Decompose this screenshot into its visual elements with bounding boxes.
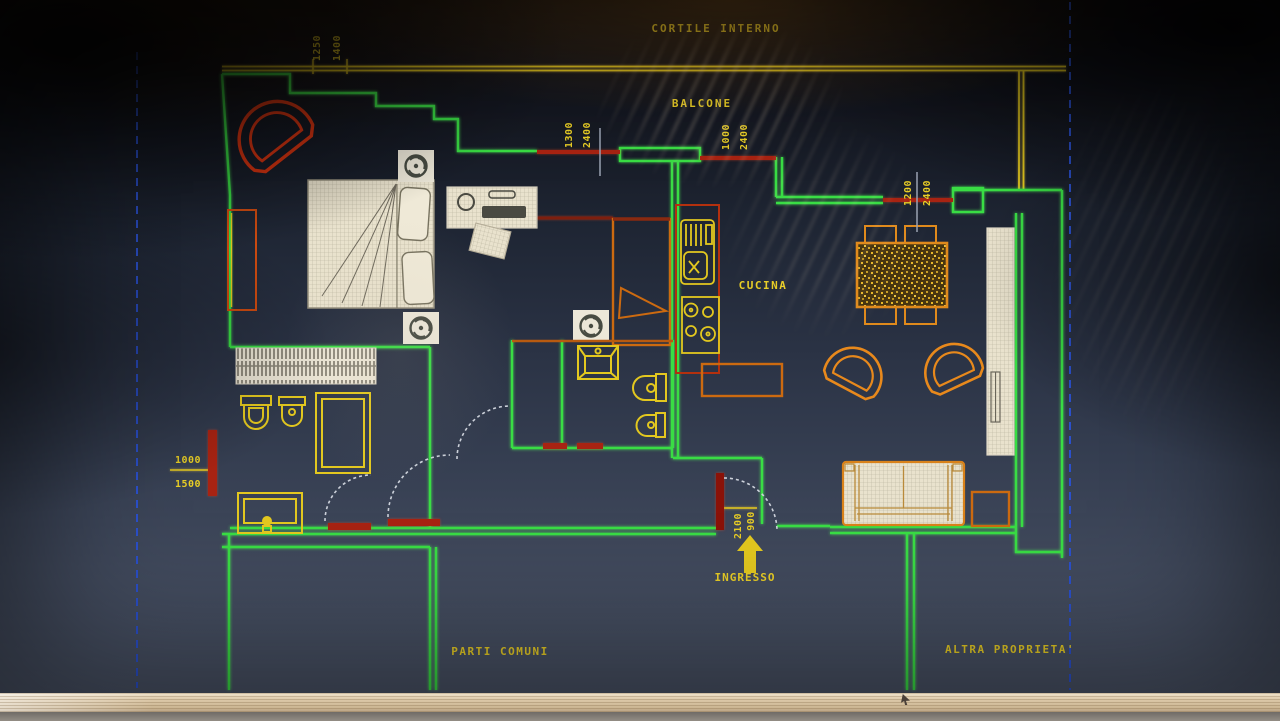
dining-table bbox=[857, 243, 947, 307]
dining-set bbox=[857, 226, 947, 324]
dim-kitchen-window-height: 2400 bbox=[739, 124, 750, 150]
dim-balcony-width: 1250 bbox=[312, 35, 323, 61]
door-threshold-bath2b bbox=[577, 443, 603, 449]
dimension-labels: 1250 1400 1300 2400 1000 2400 1200 2400 … bbox=[175, 35, 933, 539]
floor-plan-drawing: CORTILE INTERNO BALCONE CUCINA INGRESSO … bbox=[0, 0, 1280, 694]
sofa bbox=[843, 462, 964, 525]
dim-entrance-height: 2100 bbox=[733, 513, 744, 539]
label-cortile-interno: CORTILE INTERNO bbox=[651, 22, 780, 35]
wall-common-left bbox=[222, 534, 436, 690]
stove bbox=[682, 297, 719, 353]
door-arc-hall bbox=[388, 455, 450, 517]
door-arc-bath1 bbox=[325, 475, 371, 521]
closet-column bbox=[613, 219, 670, 345]
dim-left-window-width: 1000 bbox=[175, 455, 201, 466]
radiator bbox=[236, 348, 376, 384]
label-parti-comuni: PARTI COMUNI bbox=[451, 645, 548, 658]
kitchen-sink bbox=[681, 220, 714, 284]
door-threshold-bath2a bbox=[543, 443, 567, 449]
pillow bbox=[402, 251, 435, 304]
bidet bbox=[637, 413, 666, 437]
wall-living-right bbox=[1016, 190, 1062, 558]
cad-floorplan-photo: CORTILE INTERNO BALCONE CUCINA INGRESSO … bbox=[0, 0, 1280, 721]
dim-kitchen-window-width: 1000 bbox=[721, 124, 732, 150]
label-cucina: CUCINA bbox=[739, 279, 788, 292]
wall-pillar-topright bbox=[953, 188, 983, 212]
studio bbox=[447, 187, 670, 345]
screen-bezel bbox=[0, 693, 1280, 712]
toilet bbox=[633, 374, 666, 401]
label-ingresso: INGRESSO bbox=[715, 571, 776, 584]
wall-pillar-kitchen bbox=[620, 148, 700, 161]
bedroom bbox=[224, 86, 609, 344]
bathroom-1 bbox=[236, 348, 376, 533]
dim-studio-window-height: 2400 bbox=[582, 122, 593, 148]
pillow bbox=[397, 187, 431, 241]
wall-kitchen-corner bbox=[776, 157, 883, 203]
bed bbox=[308, 180, 434, 308]
washbasin bbox=[578, 346, 618, 379]
bidet bbox=[279, 397, 305, 426]
door-arcs bbox=[325, 406, 777, 531]
door-threshold-hall bbox=[388, 519, 440, 526]
bathroom-2 bbox=[512, 341, 673, 437]
dim-entrance-width: 900 bbox=[746, 511, 757, 531]
entrance-arrow-icon bbox=[737, 535, 763, 573]
dim-studio-window-width: 1300 bbox=[564, 122, 575, 148]
dim-living-window-height: 2400 bbox=[922, 180, 933, 206]
desk bbox=[447, 187, 537, 228]
dim-left-window-height: 1500 bbox=[175, 479, 201, 490]
red-armchair bbox=[224, 86, 319, 177]
side-table bbox=[972, 492, 1009, 526]
bezel-texture bbox=[0, 693, 1280, 712]
living-room bbox=[820, 226, 1014, 526]
dim-living-window-width: 1200 bbox=[903, 180, 914, 206]
label-balcone: BALCONE bbox=[672, 97, 732, 110]
armchair bbox=[820, 338, 891, 403]
dim-balcony-height: 1400 bbox=[332, 35, 343, 61]
toilet bbox=[241, 396, 271, 429]
dimension-ticks bbox=[600, 128, 917, 232]
wall-common-right bbox=[907, 533, 914, 690]
kitchen bbox=[676, 205, 782, 396]
entrance-door-jamb bbox=[716, 473, 724, 530]
door-arc-bedroom bbox=[457, 406, 510, 459]
door-threshold-bath1 bbox=[328, 523, 371, 530]
label-altra-proprieta: ALTRA PROPRIETA' bbox=[945, 643, 1075, 656]
desk-edge bbox=[0, 712, 1280, 721]
shower bbox=[316, 393, 370, 473]
closet-door-swing bbox=[619, 288, 666, 318]
kitchen-counter-lower bbox=[702, 364, 782, 396]
bookshelf bbox=[987, 228, 1014, 455]
armchair bbox=[916, 334, 987, 397]
window-left bbox=[208, 430, 217, 496]
